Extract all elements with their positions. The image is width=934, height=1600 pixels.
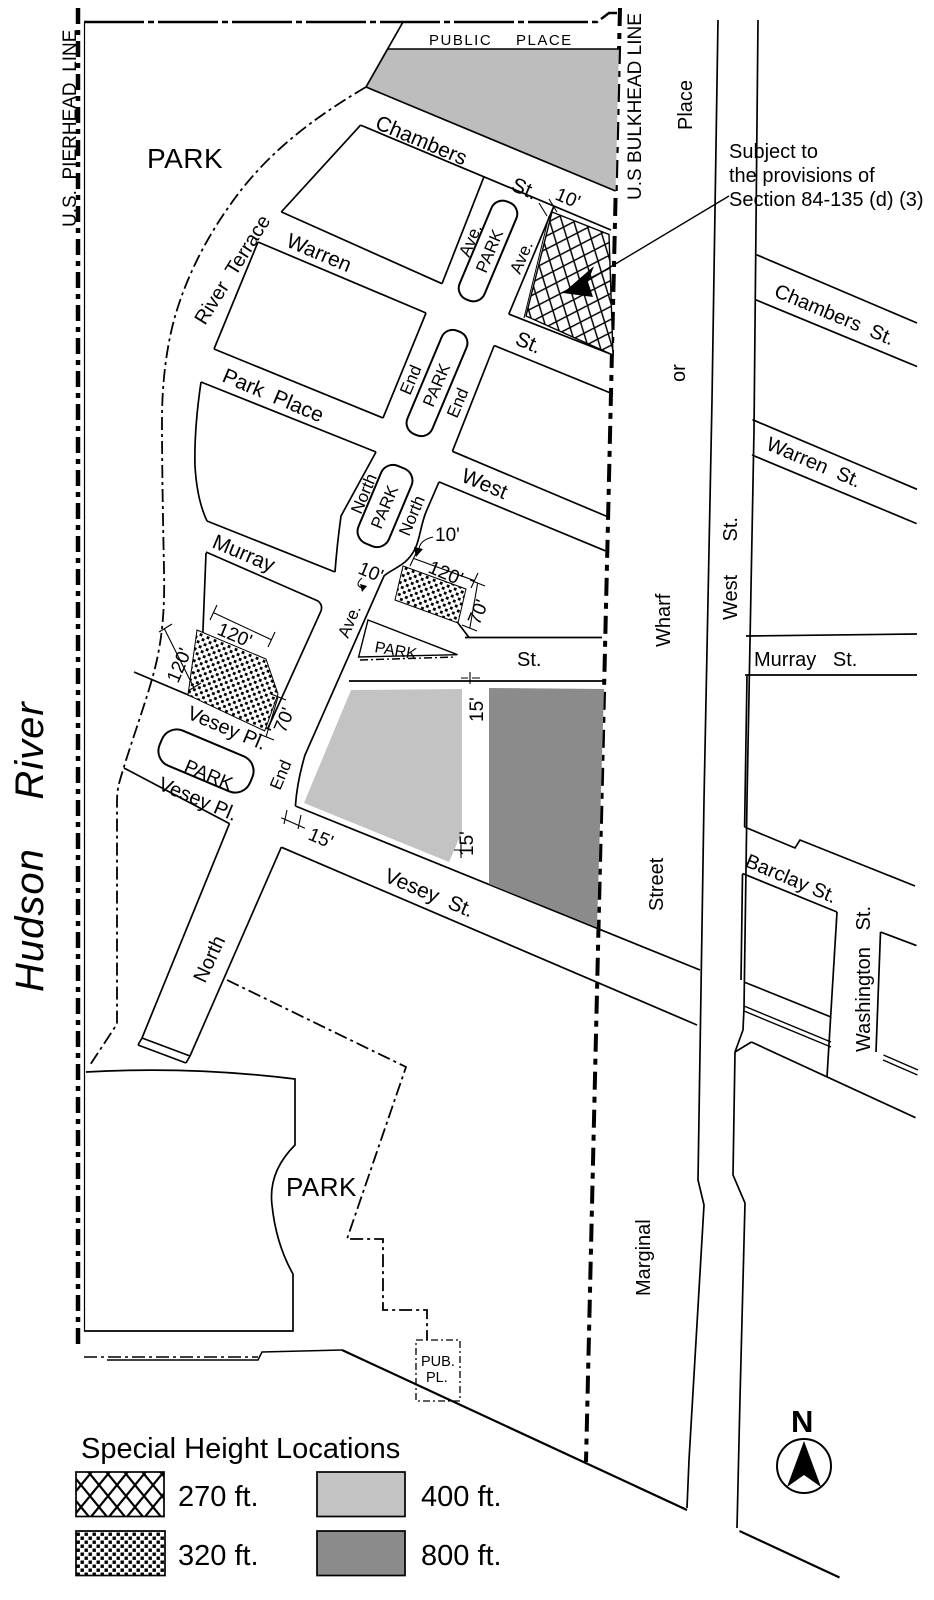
svg-text:800 ft.: 800 ft. <box>421 1540 502 1572</box>
svg-text:Section 84-135 (d) (3): Section 84-135 (d) (3) <box>729 189 924 211</box>
svg-text:10': 10' <box>435 525 460 546</box>
svg-text:PLACE: PLACE <box>516 32 573 49</box>
svg-text:Street: Street <box>646 857 668 911</box>
svg-text:St.: St. <box>517 649 541 671</box>
svg-text:the provisions of: the provisions of <box>729 165 875 187</box>
svg-text:PARK: PARK <box>286 1172 357 1202</box>
svg-text:15': 15' <box>467 697 488 722</box>
svg-text:PUB.: PUB. <box>421 1354 455 1370</box>
svg-text:270 ft.: 270 ft. <box>178 1481 259 1513</box>
svg-text:or: or <box>668 364 690 382</box>
svg-text:PL.: PL. <box>426 1370 448 1386</box>
svg-text:N: N <box>791 1404 813 1439</box>
svg-text:400 ft.: 400 ft. <box>421 1481 502 1513</box>
svg-text:Special Height Locations: Special Height Locations <box>81 1433 400 1465</box>
svg-text:Subject to: Subject to <box>729 141 818 163</box>
svg-text:U.S BULKHEAD LINE: U.S BULKHEAD LINE <box>625 13 646 200</box>
svg-text:Wharf: Wharf <box>653 593 675 647</box>
svg-text:Place: Place <box>675 80 697 130</box>
svg-text:Washington St.: Washington St. <box>853 906 875 1052</box>
svg-text:PUBLIC: PUBLIC <box>429 32 492 49</box>
svg-text:15': 15' <box>457 831 478 856</box>
svg-text:Hudson River: Hudson River <box>8 701 52 992</box>
svg-text:Murray St.: Murray St. <box>754 649 857 671</box>
svg-text:320 ft.: 320 ft. <box>178 1540 259 1572</box>
svg-text:Marginal: Marginal <box>633 1219 655 1296</box>
svg-text:West St.: West St. <box>720 517 742 620</box>
svg-text:PARK: PARK <box>147 143 223 174</box>
svg-text:U.S. PIERHEAD LINE: U.S. PIERHEAD LINE <box>60 30 81 227</box>
